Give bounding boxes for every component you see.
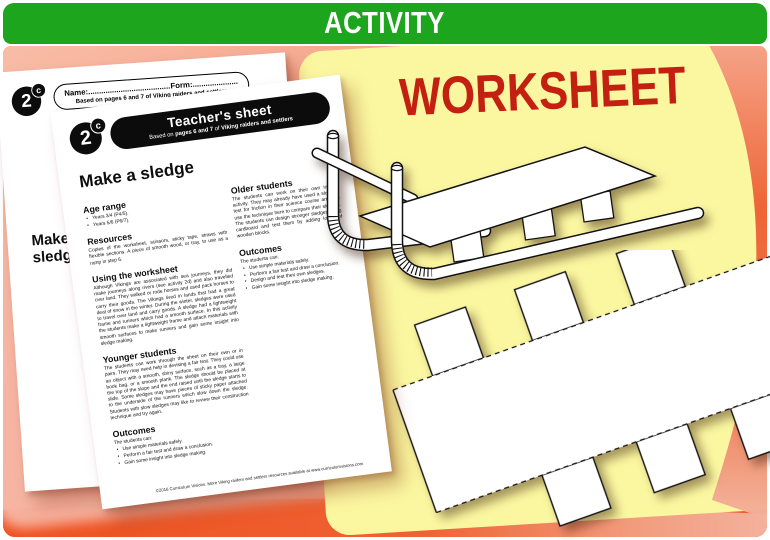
form-dotted-line[interactable]: ..................... — [192, 77, 238, 89]
name-label: Name: — [64, 87, 88, 98]
activity-banner: ACTIVITY — [3, 3, 767, 44]
worksheet-headline: WORKSHEET — [398, 55, 687, 128]
straw-open-end — [391, 165, 402, 170]
sledge-illustration — [300, 128, 770, 338]
activity-card: ACTIVITY — [0, 0, 770, 540]
badge-2c: 2 c — [68, 120, 106, 158]
based-prefix: Based on — [149, 131, 176, 140]
activity-banner-label: ACTIVITY — [325, 6, 446, 41]
badge-letter: c — [31, 82, 47, 98]
straw-open-end — [327, 133, 338, 138]
form-label: Form: — [170, 80, 193, 91]
badge-2c: 2 c — [11, 85, 44, 118]
teacher-sheet-left-column: Age range Years 3/4 (P4/5). Years 5/6 (P… — [82, 180, 256, 468]
